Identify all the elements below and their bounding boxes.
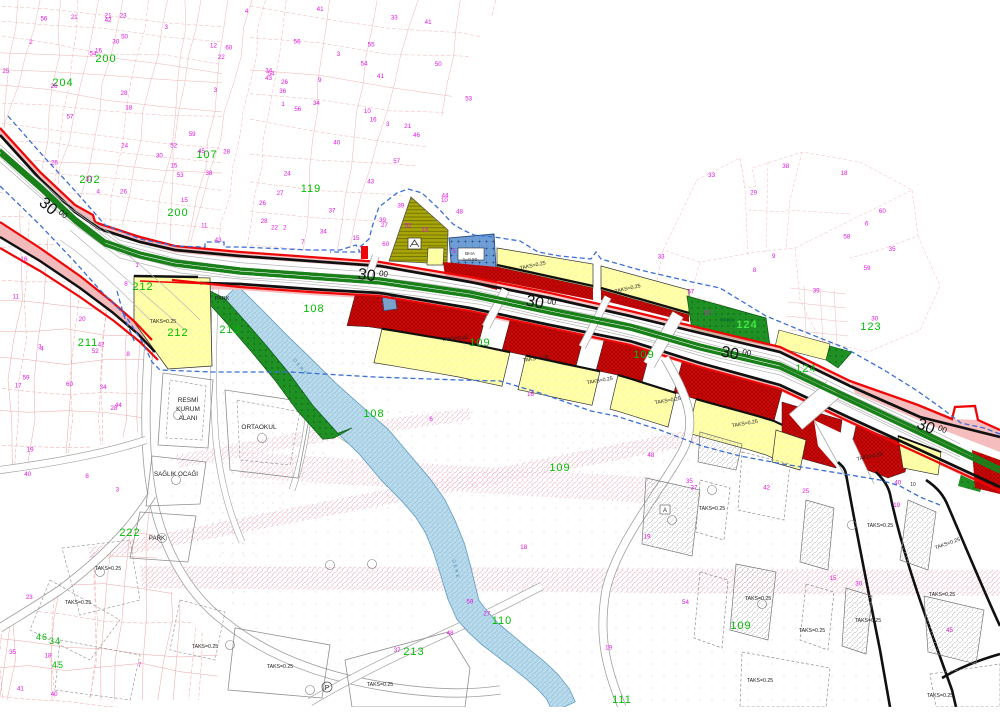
svg-text:KURUM: KURUM bbox=[176, 406, 200, 413]
svg-text:45: 45 bbox=[198, 148, 205, 155]
svg-text:3: 3 bbox=[386, 121, 390, 128]
svg-text:55: 55 bbox=[368, 42, 375, 49]
svg-text:48: 48 bbox=[647, 452, 654, 459]
svg-text:35: 35 bbox=[9, 649, 16, 656]
svg-text:43: 43 bbox=[367, 178, 374, 185]
svg-text:200: 200 bbox=[95, 53, 116, 65]
svg-text:4: 4 bbox=[96, 188, 100, 195]
svg-text:10: 10 bbox=[910, 482, 916, 488]
svg-text:34: 34 bbox=[49, 636, 61, 646]
svg-text:26: 26 bbox=[120, 189, 127, 196]
svg-text:19: 19 bbox=[27, 447, 34, 454]
svg-text:111: 111 bbox=[612, 694, 632, 706]
svg-text:26: 26 bbox=[51, 83, 58, 90]
svg-text:TAKS=0.25: TAKS=0.25 bbox=[855, 618, 881, 624]
svg-text:213: 213 bbox=[219, 324, 240, 336]
svg-text:41: 41 bbox=[377, 73, 384, 80]
svg-text:ALANI: ALANI bbox=[179, 415, 198, 422]
svg-text:41: 41 bbox=[317, 6, 324, 13]
svg-text:26: 26 bbox=[259, 200, 266, 207]
svg-text:24: 24 bbox=[121, 142, 128, 149]
svg-text:5: 5 bbox=[452, 248, 456, 255]
svg-text:20: 20 bbox=[79, 316, 86, 323]
svg-text:52: 52 bbox=[170, 142, 177, 149]
svg-text:18: 18 bbox=[44, 652, 51, 659]
svg-text:17: 17 bbox=[15, 382, 22, 389]
svg-text:1: 1 bbox=[135, 262, 139, 269]
svg-text:8: 8 bbox=[753, 267, 757, 274]
svg-text:TAKS=0.25: TAKS=0.25 bbox=[267, 664, 293, 670]
svg-text:6: 6 bbox=[865, 220, 869, 227]
svg-text:59: 59 bbox=[864, 265, 871, 272]
svg-text:16: 16 bbox=[527, 391, 534, 398]
svg-text:34: 34 bbox=[313, 100, 320, 107]
svg-text:3: 3 bbox=[214, 87, 218, 94]
svg-text:8: 8 bbox=[85, 473, 89, 480]
svg-text:36: 36 bbox=[279, 88, 286, 95]
svg-text:46: 46 bbox=[413, 132, 420, 139]
svg-text:28: 28 bbox=[261, 218, 268, 225]
svg-text:4: 4 bbox=[245, 8, 249, 15]
svg-text:30: 30 bbox=[525, 293, 546, 313]
svg-text:3: 3 bbox=[337, 51, 341, 58]
svg-text:53: 53 bbox=[465, 95, 472, 102]
svg-text:35: 35 bbox=[889, 246, 896, 253]
svg-text:TAKS=0.25: TAKS=0.25 bbox=[150, 319, 176, 325]
svg-text:26: 26 bbox=[281, 79, 288, 86]
svg-text:37: 37 bbox=[329, 207, 336, 214]
svg-text:TAKS=0.25: TAKS=0.25 bbox=[367, 682, 393, 688]
svg-text:40: 40 bbox=[333, 140, 340, 147]
svg-text:11: 11 bbox=[201, 222, 208, 229]
svg-text:8: 8 bbox=[124, 280, 128, 287]
svg-text:22: 22 bbox=[218, 54, 225, 61]
svg-text:37: 37 bbox=[394, 647, 401, 654]
svg-text:33: 33 bbox=[391, 15, 398, 22]
svg-text:212: 212 bbox=[132, 281, 153, 293]
svg-text:40: 40 bbox=[24, 471, 31, 478]
svg-text:27: 27 bbox=[483, 610, 490, 617]
svg-text:10: 10 bbox=[704, 310, 711, 317]
svg-text:42: 42 bbox=[98, 342, 105, 349]
svg-text:30: 30 bbox=[156, 153, 163, 160]
svg-text:19: 19 bbox=[605, 645, 612, 652]
svg-text:43: 43 bbox=[215, 237, 222, 244]
svg-text:123: 123 bbox=[860, 321, 881, 333]
svg-text:25: 25 bbox=[2, 68, 9, 75]
svg-text:22: 22 bbox=[271, 225, 278, 232]
svg-text:12: 12 bbox=[210, 42, 217, 49]
svg-text:2: 2 bbox=[29, 39, 33, 46]
svg-text:41: 41 bbox=[17, 686, 24, 693]
svg-text:109: 109 bbox=[633, 349, 654, 361]
svg-text:108: 108 bbox=[303, 303, 324, 315]
svg-text:PARK: PARK bbox=[215, 296, 230, 302]
svg-text:25: 25 bbox=[802, 488, 809, 495]
svg-text:4: 4 bbox=[40, 346, 44, 353]
svg-text:26: 26 bbox=[51, 159, 58, 166]
svg-text:109: 109 bbox=[469, 337, 490, 349]
svg-text:18: 18 bbox=[125, 105, 132, 112]
svg-text:34: 34 bbox=[320, 229, 327, 236]
svg-text:TAKS=0.25: TAKS=0.25 bbox=[867, 523, 893, 529]
svg-text:42: 42 bbox=[763, 484, 770, 491]
svg-text:A: A bbox=[663, 508, 667, 514]
svg-text:30: 30 bbox=[720, 344, 741, 364]
svg-text:23: 23 bbox=[26, 594, 33, 601]
svg-text:TAKS=0.25: TAKS=0.25 bbox=[192, 644, 218, 650]
svg-text:23: 23 bbox=[120, 12, 127, 19]
svg-text:PARK: PARK bbox=[720, 318, 734, 324]
svg-text:37: 37 bbox=[86, 176, 93, 183]
svg-text:52: 52 bbox=[405, 223, 412, 230]
svg-text:15: 15 bbox=[170, 162, 177, 169]
svg-text:2: 2 bbox=[283, 224, 287, 231]
svg-text:TAKS=0.25: TAKS=0.25 bbox=[799, 628, 825, 634]
svg-text:57: 57 bbox=[67, 113, 74, 120]
svg-text:9: 9 bbox=[772, 253, 776, 260]
svg-text:7: 7 bbox=[301, 239, 305, 246]
svg-text:56: 56 bbox=[294, 106, 301, 113]
svg-text:30: 30 bbox=[855, 580, 862, 587]
svg-text:46: 46 bbox=[36, 632, 48, 642]
svg-text:16: 16 bbox=[95, 48, 102, 55]
svg-text:00: 00 bbox=[378, 269, 389, 279]
svg-text:109: 109 bbox=[549, 462, 570, 474]
svg-text:38: 38 bbox=[782, 163, 789, 170]
svg-text:39: 39 bbox=[379, 217, 386, 224]
svg-text:52: 52 bbox=[92, 348, 99, 355]
svg-text:11: 11 bbox=[12, 293, 19, 300]
svg-text:RESMİ: RESMİ bbox=[178, 395, 199, 404]
svg-text:58: 58 bbox=[843, 233, 850, 240]
svg-text:110: 110 bbox=[492, 615, 513, 627]
svg-text:30: 30 bbox=[871, 316, 878, 323]
svg-text:45: 45 bbox=[946, 627, 953, 634]
svg-text:7: 7 bbox=[138, 662, 142, 669]
svg-text:1=0.50: 1=0.50 bbox=[463, 257, 478, 263]
svg-text:30: 30 bbox=[112, 38, 119, 45]
svg-text:28: 28 bbox=[223, 149, 230, 156]
svg-text:1: 1 bbox=[281, 101, 285, 108]
svg-text:41: 41 bbox=[425, 19, 432, 26]
svg-text:ORTAOKUL: ORTAOKUL bbox=[241, 424, 277, 431]
svg-text:222: 222 bbox=[119, 527, 140, 539]
svg-text:50: 50 bbox=[121, 34, 128, 41]
svg-text:16: 16 bbox=[20, 256, 27, 263]
svg-text:TAKS=0.25: TAKS=0.25 bbox=[927, 693, 953, 699]
svg-text:39: 39 bbox=[813, 287, 820, 294]
svg-text:200: 200 bbox=[167, 207, 188, 219]
svg-text:33: 33 bbox=[658, 254, 665, 261]
svg-text:3: 3 bbox=[116, 487, 120, 494]
svg-text:15: 15 bbox=[353, 235, 360, 242]
svg-text:21: 21 bbox=[71, 14, 78, 21]
svg-text:13: 13 bbox=[421, 226, 428, 233]
svg-text:37: 37 bbox=[691, 485, 698, 492]
svg-text:24: 24 bbox=[284, 170, 291, 177]
svg-text:29: 29 bbox=[750, 189, 757, 196]
svg-text:213: 213 bbox=[403, 646, 424, 658]
svg-text:59: 59 bbox=[189, 131, 196, 138]
svg-text:TAKS=0.25: TAKS=0.25 bbox=[95, 566, 121, 572]
svg-text:124: 124 bbox=[736, 319, 757, 331]
svg-text:38: 38 bbox=[206, 170, 213, 177]
svg-text:119: 119 bbox=[301, 183, 322, 195]
svg-text:60: 60 bbox=[66, 381, 73, 388]
svg-text:6: 6 bbox=[429, 416, 433, 423]
svg-text:P: P bbox=[325, 685, 330, 692]
svg-text:3: 3 bbox=[165, 24, 169, 31]
svg-text:TAKS=0.25: TAKS=0.25 bbox=[747, 678, 773, 684]
svg-text:212: 212 bbox=[167, 327, 188, 339]
svg-text:34: 34 bbox=[265, 68, 272, 75]
svg-text:TAKS=0.25: TAKS=0.25 bbox=[929, 592, 955, 598]
svg-text:124: 124 bbox=[795, 363, 816, 375]
svg-text:21: 21 bbox=[404, 123, 411, 130]
svg-text:34: 34 bbox=[100, 384, 107, 391]
svg-text:48: 48 bbox=[456, 208, 463, 215]
svg-text:60: 60 bbox=[879, 208, 886, 215]
svg-text:28: 28 bbox=[111, 405, 118, 412]
svg-text:BHA: BHA bbox=[465, 251, 476, 257]
svg-text:42: 42 bbox=[105, 17, 112, 24]
svg-text:45: 45 bbox=[52, 660, 64, 670]
svg-text:18: 18 bbox=[841, 170, 848, 177]
svg-text:48: 48 bbox=[447, 630, 454, 637]
svg-text:60: 60 bbox=[382, 241, 389, 248]
svg-text:28: 28 bbox=[121, 90, 128, 97]
svg-text:TAKS=0.25: TAKS=0.25 bbox=[745, 596, 771, 602]
svg-text:109: 109 bbox=[730, 620, 751, 632]
svg-text:18: 18 bbox=[520, 544, 527, 551]
svg-text:50: 50 bbox=[435, 61, 442, 68]
svg-text:19: 19 bbox=[893, 502, 900, 509]
svg-text:30: 30 bbox=[357, 266, 377, 285]
svg-text:TAKS=0.25: TAKS=0.25 bbox=[699, 506, 725, 512]
svg-text:15: 15 bbox=[181, 197, 188, 204]
svg-text:40: 40 bbox=[894, 480, 901, 487]
svg-text:60: 60 bbox=[225, 45, 232, 52]
svg-text:54: 54 bbox=[682, 599, 689, 606]
svg-text:19: 19 bbox=[644, 533, 651, 540]
svg-text:9: 9 bbox=[318, 77, 322, 84]
svg-text:SAĞLIK OCAĞI: SAĞLIK OCAĞI bbox=[154, 471, 198, 478]
svg-text:56: 56 bbox=[294, 38, 301, 45]
svg-text:16: 16 bbox=[370, 117, 377, 124]
svg-text:10: 10 bbox=[364, 108, 371, 115]
svg-text:44: 44 bbox=[442, 193, 449, 200]
svg-text:27: 27 bbox=[277, 190, 284, 197]
svg-text:8: 8 bbox=[126, 351, 130, 358]
svg-text:57: 57 bbox=[687, 289, 694, 296]
svg-text:53: 53 bbox=[177, 172, 184, 179]
svg-text:33: 33 bbox=[708, 172, 715, 179]
svg-text:40: 40 bbox=[51, 691, 58, 698]
svg-text:56: 56 bbox=[40, 16, 47, 23]
svg-text:59: 59 bbox=[23, 374, 30, 381]
svg-text:TAKS=0.25: TAKS=0.25 bbox=[65, 600, 91, 606]
svg-text:39: 39 bbox=[397, 202, 404, 209]
svg-text:54: 54 bbox=[361, 61, 368, 68]
svg-text:59: 59 bbox=[466, 598, 473, 605]
svg-text:57: 57 bbox=[393, 158, 400, 165]
svg-text:15: 15 bbox=[830, 575, 837, 582]
svg-text:108: 108 bbox=[363, 408, 384, 420]
